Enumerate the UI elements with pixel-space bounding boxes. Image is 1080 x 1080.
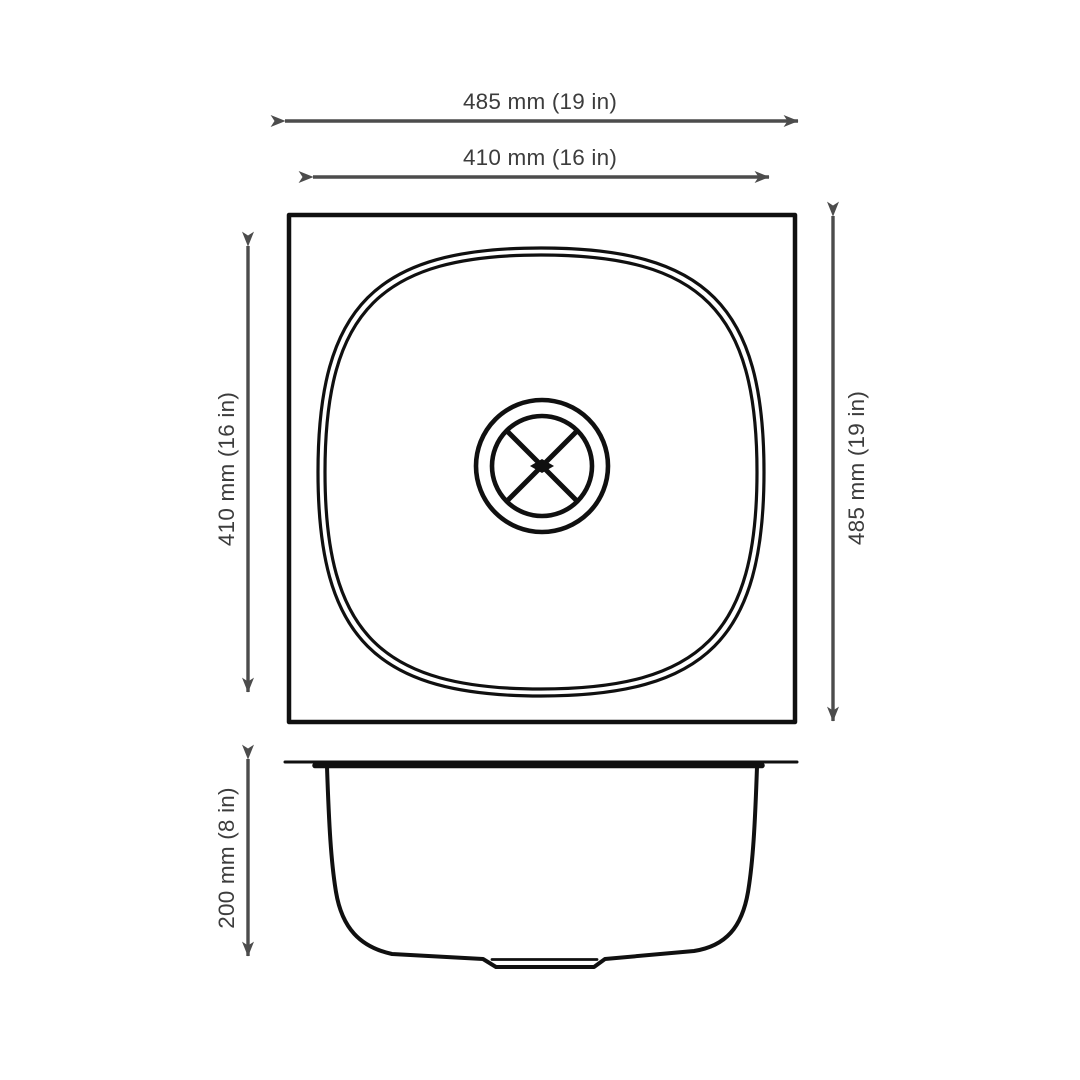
dim-label-depth: 200 mm (8 in) xyxy=(214,787,239,928)
dimension-annotations: 485 mm (19 in) 410 mm (16 in) 410 mm (16… xyxy=(214,89,869,956)
top-view xyxy=(289,215,795,722)
dim-label-bowl-length: 410 mm (16 in) xyxy=(214,392,239,546)
dim-label-outer-length: 485 mm (19 in) xyxy=(844,391,869,545)
front-view xyxy=(285,762,797,967)
dim-label-bowl-width: 410 mm (16 in) xyxy=(463,145,617,170)
dim-label-outer-width: 485 mm (19 in) xyxy=(463,89,617,114)
drain xyxy=(476,400,608,532)
diagram-svg: 485 mm (19 in) 410 mm (16 in) 410 mm (16… xyxy=(0,0,1080,1080)
bowl-profile xyxy=(327,767,757,967)
sink-dimension-diagram: 485 mm (19 in) 410 mm (16 in) 410 mm (16… xyxy=(0,0,1080,1080)
